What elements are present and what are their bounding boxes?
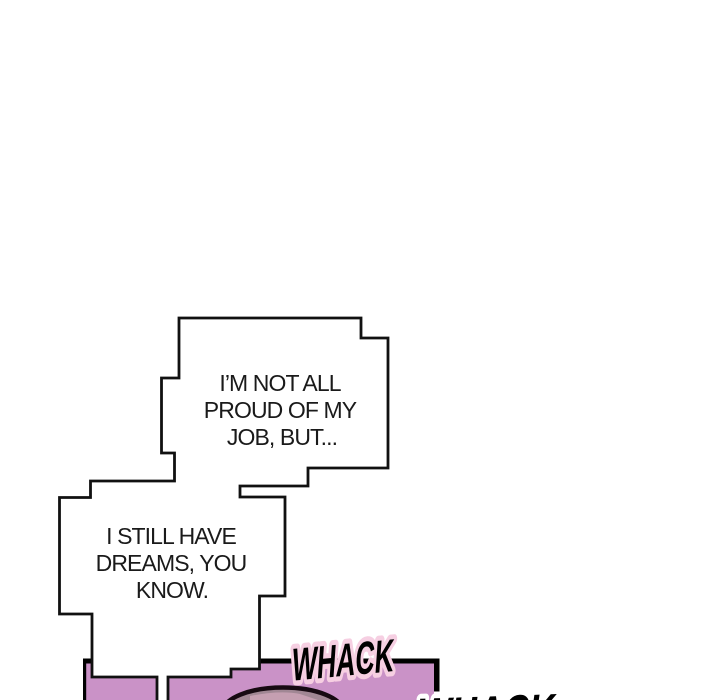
- svg-text:KNOW.: KNOW.: [136, 577, 208, 603]
- svg-text:I STILL HAVE: I STILL HAVE: [106, 523, 236, 549]
- svg-text:JOB, BUT...: JOB, BUT...: [227, 424, 337, 450]
- svg-text:I’M NOT ALL: I’M NOT ALL: [219, 370, 341, 396]
- svg-text:WHACK: WHACK: [290, 631, 396, 692]
- svg-text:DREAMS, YOU: DREAMS, YOU: [96, 550, 247, 576]
- svg-text:PROUD OF MY: PROUD OF MY: [204, 397, 357, 423]
